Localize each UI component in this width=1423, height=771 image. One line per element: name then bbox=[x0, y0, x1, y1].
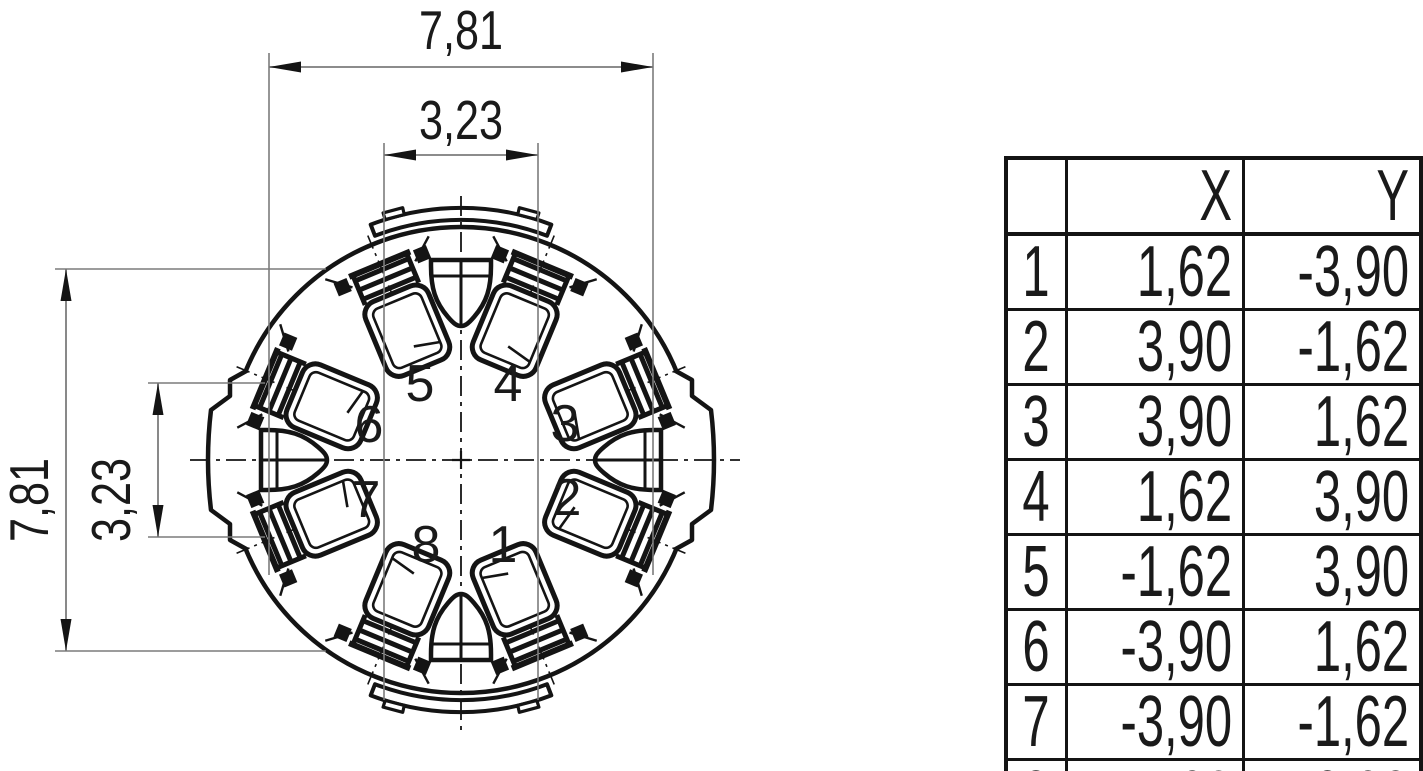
arrow-icon bbox=[384, 150, 416, 161]
pin-coordinate-table: X Y 11,62-3,9023,90-1,6233,901,6241,623,… bbox=[1004, 156, 1423, 771]
arrow-icon bbox=[269, 62, 301, 73]
pin-label-3: 3 bbox=[551, 395, 580, 453]
pin-label-6: 6 bbox=[355, 396, 384, 454]
arrow-icon bbox=[61, 269, 72, 301]
table-row-pin-1: 11,62-3,90 bbox=[1006, 234, 1421, 310]
table-row-pin-4: 41,623,90 bbox=[1006, 460, 1421, 535]
x-value-cell: 1,62 bbox=[1066, 460, 1243, 535]
dim-value-vertical-outer: 7,81 bbox=[0, 458, 60, 542]
table-row-pin-6: 6-3,901,62 bbox=[1006, 610, 1421, 685]
pin-number-cell: 1 bbox=[1006, 234, 1066, 310]
pin-label-1: 1 bbox=[489, 516, 518, 574]
pin-label-8: 8 bbox=[412, 516, 441, 574]
pin-label-7: 7 bbox=[352, 471, 381, 529]
pin-number-cell: 6 bbox=[1006, 610, 1066, 685]
pin-number-cell: 4 bbox=[1006, 460, 1066, 535]
pin-label-4: 4 bbox=[494, 355, 523, 413]
y-value-cell: -3,90 bbox=[1243, 234, 1421, 310]
x-value-cell: -1,62 bbox=[1066, 535, 1243, 610]
arrow-icon bbox=[621, 62, 653, 73]
y-value-cell: 1,62 bbox=[1243, 385, 1421, 460]
pin-number-cell: 3 bbox=[1006, 385, 1066, 460]
table-row-pin-3: 33,901,62 bbox=[1006, 385, 1421, 460]
y-value-cell: -1,62 bbox=[1243, 310, 1421, 385]
header-x-cell: X bbox=[1066, 158, 1243, 234]
pin-label-2: 2 bbox=[553, 469, 582, 527]
table-row-pin-2: 23,90-1,62 bbox=[1006, 310, 1421, 385]
pin-number-cell: 8 bbox=[1006, 760, 1066, 771]
dim-value-horizontal-outer: 7,81 bbox=[419, 0, 503, 61]
table-row-pin-5: 5-1,623,90 bbox=[1006, 535, 1421, 610]
y-value-cell: 3,90 bbox=[1243, 535, 1421, 610]
pin-number-cell: 2 bbox=[1006, 310, 1066, 385]
x-value-cell: 3,90 bbox=[1066, 385, 1243, 460]
x-value-cell: -1,62 bbox=[1066, 760, 1243, 771]
x-value-cell: -3,90 bbox=[1066, 610, 1243, 685]
dim-value-horizontal-inner: 3,23 bbox=[419, 89, 503, 151]
y-value-cell: -1,62 bbox=[1243, 685, 1421, 760]
x-value-cell: -3,90 bbox=[1066, 685, 1243, 760]
y-value-cell: 1,62 bbox=[1243, 610, 1421, 685]
pin-number-cell: 5 bbox=[1006, 535, 1066, 610]
pin-label-5: 5 bbox=[406, 355, 435, 413]
header-pin-cell bbox=[1006, 158, 1066, 234]
arrow-icon bbox=[153, 505, 164, 537]
arrow-icon bbox=[506, 150, 538, 161]
y-value-cell: 3,90 bbox=[1243, 460, 1421, 535]
table-row-pin-7: 7-3,90-1,62 bbox=[1006, 685, 1421, 760]
x-value-cell: 1,62 bbox=[1066, 234, 1243, 310]
y-value-cell: -3,90 bbox=[1243, 760, 1421, 771]
pin-number-cell: 7 bbox=[1006, 685, 1066, 760]
technical-drawing-page: 12345678 bbox=[0, 0, 1423, 771]
table-header-row: X Y bbox=[1006, 158, 1421, 234]
arrow-icon bbox=[61, 619, 72, 651]
table-row-pin-8: 8-1,62-3,90 bbox=[1006, 760, 1421, 771]
dim-value-vertical-inner: 3,23 bbox=[80, 458, 142, 542]
arrow-icon bbox=[153, 383, 164, 415]
header-y-cell: Y bbox=[1243, 158, 1421, 234]
x-value-cell: 3,90 bbox=[1066, 310, 1243, 385]
connector-face-drawing: 12345678 bbox=[0, 0, 976, 771]
